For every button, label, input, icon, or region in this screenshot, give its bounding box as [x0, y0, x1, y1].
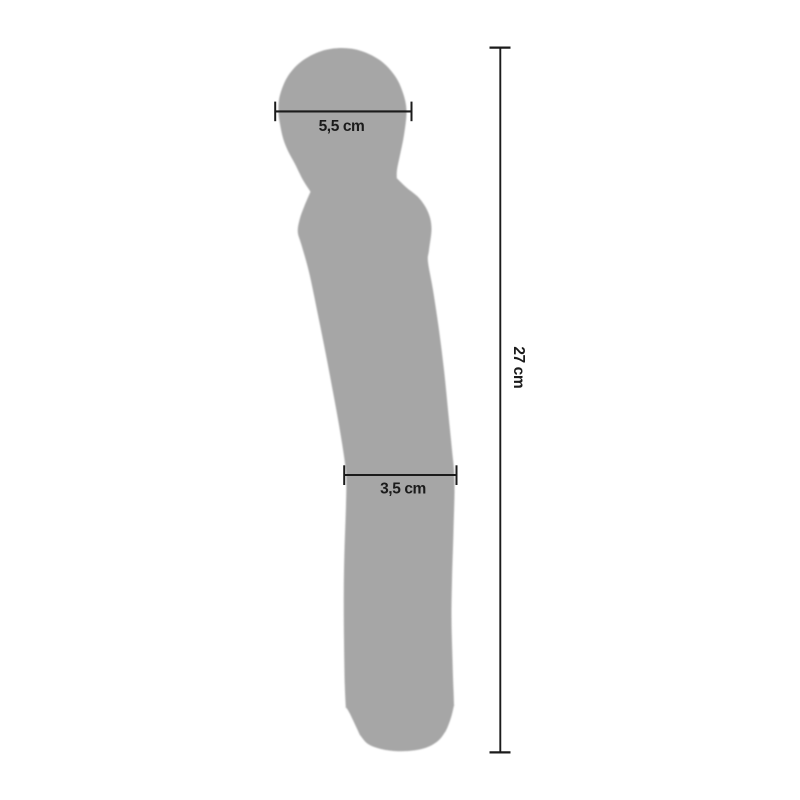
svg-text:3,5 cm: 3,5 cm	[380, 481, 426, 498]
svg-text:27 cm: 27 cm	[510, 346, 527, 388]
svg-text:5,5 cm: 5,5 cm	[319, 118, 365, 135]
